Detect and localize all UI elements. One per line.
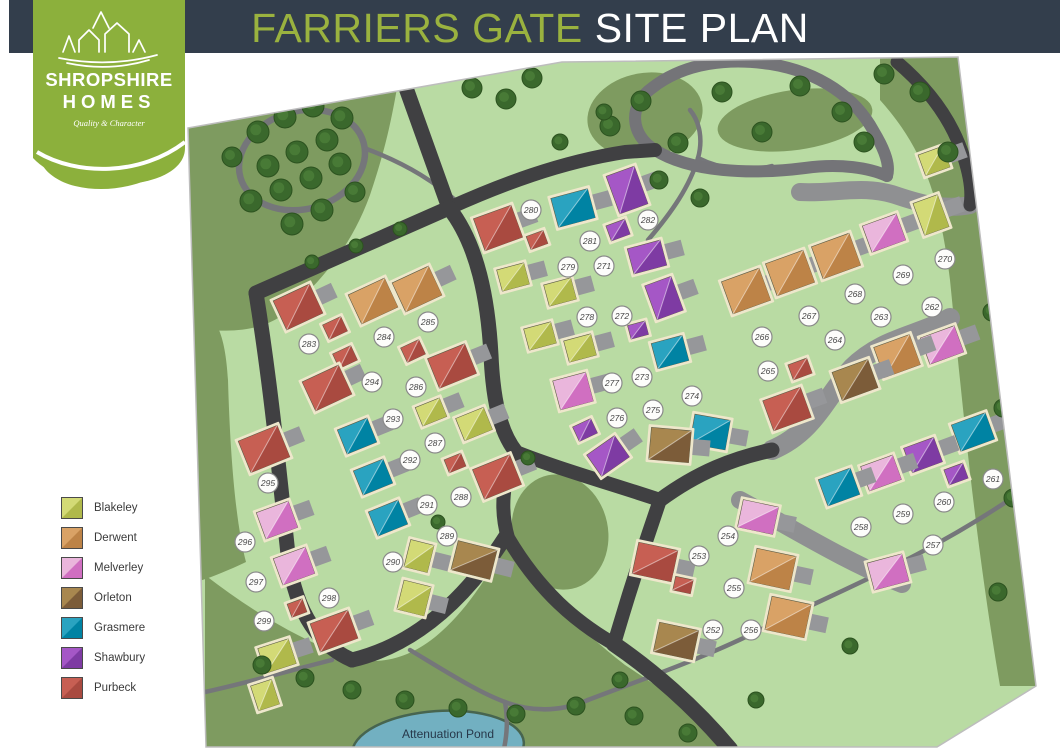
legend-item-melverley: Melverley	[61, 557, 145, 579]
tree-icon	[521, 451, 535, 465]
plot-marker-258: 258	[851, 517, 871, 537]
plot-marker-281: 281	[580, 231, 600, 251]
plot-marker-280: 280	[521, 200, 541, 220]
tree-icon	[650, 171, 668, 189]
plot-marker-253: 253	[689, 546, 709, 566]
tree-icon	[247, 121, 269, 143]
plot-marker-265: 265	[758, 361, 778, 381]
svg-text:293: 293	[385, 414, 400, 424]
plot-marker-295: 295	[258, 473, 278, 493]
plot-marker-273: 273	[632, 367, 652, 387]
tree-icon	[938, 142, 958, 162]
tree-icon	[316, 129, 338, 151]
legend-swatch-icon	[61, 617, 83, 639]
svg-text:272: 272	[614, 311, 629, 321]
svg-text:254: 254	[720, 531, 735, 541]
plot-marker-296: 296	[235, 532, 255, 552]
tree-icon	[296, 669, 314, 687]
svg-text:283: 283	[301, 339, 316, 349]
plot-marker-266: 266	[752, 327, 772, 347]
legend-swatch-icon	[61, 677, 83, 699]
plot-marker-274: 274	[682, 386, 702, 406]
plot-marker-284: 284	[374, 327, 394, 347]
plot-marker-263: 263	[871, 307, 891, 327]
legend-item-grasmere: Grasmere	[61, 617, 145, 639]
logo-line1: SHROPSHIRE	[45, 69, 172, 90]
plot-marker-271: 271	[594, 256, 614, 276]
tree-icon	[842, 638, 858, 654]
plot-marker-254: 254	[718, 526, 738, 546]
legend-item-shawbury: Shawbury	[61, 647, 145, 669]
tree-icon	[612, 672, 628, 688]
tree-icon	[311, 199, 333, 221]
tree-icon	[270, 179, 292, 201]
tree-icon	[522, 68, 542, 88]
legend-swatch-icon	[61, 497, 83, 519]
plot-marker-286: 286	[406, 377, 426, 397]
plot-marker-297: 297	[246, 572, 266, 592]
plot-marker-292: 292	[400, 450, 420, 470]
house-type-legend: BlakeleyDerwentMelverleyOrletonGrasmereS…	[61, 497, 145, 699]
svg-text:285: 285	[420, 317, 435, 327]
svg-text:289: 289	[439, 531, 454, 541]
plot-marker-252: 252	[703, 620, 723, 640]
logo-line2: HOMES	[63, 91, 156, 112]
plot-marker-289: 289	[437, 526, 457, 546]
svg-text:274: 274	[684, 391, 699, 401]
svg-text:288: 288	[453, 492, 468, 502]
svg-text:255: 255	[726, 583, 741, 593]
plot-marker-285: 285	[418, 312, 438, 332]
tree-icon	[462, 78, 482, 98]
tree-icon	[790, 76, 810, 96]
svg-text:258: 258	[853, 522, 868, 532]
svg-text:269: 269	[895, 270, 910, 280]
plot-marker-259: 259	[893, 504, 913, 524]
svg-text:264: 264	[827, 335, 842, 345]
tree-icon	[349, 239, 363, 253]
plot-marker-288: 288	[451, 487, 471, 507]
title-development-name: FARRIERS GATE	[251, 5, 583, 51]
tree-icon	[679, 724, 697, 742]
plot-marker-276: 276	[607, 408, 627, 428]
tree-icon	[874, 64, 894, 84]
svg-text:298: 298	[321, 593, 336, 603]
svg-text:297: 297	[248, 577, 263, 587]
tree-icon	[552, 134, 568, 150]
title-suffix: SITE PLAN	[595, 5, 809, 51]
legend-label: Grasmere	[94, 622, 145, 634]
svg-text:284: 284	[376, 332, 391, 342]
plot-marker-269: 269	[893, 265, 913, 285]
plot-marker-293: 293	[383, 409, 403, 429]
tree-icon	[989, 583, 1007, 601]
legend-label: Melverley	[94, 562, 143, 574]
legend-item-blakeley: Blakeley	[61, 497, 145, 519]
tree-icon	[396, 691, 414, 709]
legend-label: Orleton	[94, 592, 132, 604]
tree-icon	[567, 697, 585, 715]
svg-text:273: 273	[634, 372, 649, 382]
legend-label: Derwent	[94, 532, 137, 544]
plot-marker-256: 256	[741, 620, 761, 640]
svg-text:286: 286	[408, 382, 423, 392]
svg-text:280: 280	[523, 205, 538, 215]
tree-icon	[668, 133, 688, 153]
plot-marker-290: 290	[383, 552, 403, 572]
svg-text:252: 252	[705, 625, 720, 635]
plot-marker-282: 282	[638, 210, 658, 230]
tree-icon	[854, 132, 874, 152]
tree-icon	[329, 153, 351, 175]
svg-text:277: 277	[604, 378, 619, 388]
plot-marker-298: 298	[319, 588, 339, 608]
svg-text:268: 268	[847, 289, 862, 299]
plot-marker-291: 291	[417, 495, 437, 515]
svg-text:282: 282	[640, 215, 655, 225]
svg-text:262: 262	[924, 302, 939, 312]
legend-label: Purbeck	[94, 682, 136, 694]
tree-icon	[625, 707, 643, 725]
tree-icon	[910, 82, 930, 102]
tree-icon	[631, 91, 651, 111]
svg-text:276: 276	[609, 413, 624, 423]
svg-text:253: 253	[691, 551, 706, 561]
svg-text:275: 275	[645, 405, 660, 415]
shropshire-homes-logo: SHROPSHIRE HOMES Quality & Character	[33, 0, 185, 198]
legend-swatch-icon	[61, 587, 83, 609]
plot-marker-267: 267	[799, 306, 819, 326]
svg-text:287: 287	[427, 438, 442, 448]
tree-icon	[281, 213, 303, 235]
svg-text:265: 265	[760, 366, 775, 376]
tree-icon	[507, 705, 525, 723]
tree-icon	[343, 681, 361, 699]
plot-marker-294: 294	[362, 372, 382, 392]
plot-marker-257: 257	[923, 535, 943, 555]
plot-marker-278: 278	[577, 307, 597, 327]
site-plan-page: 2522532542552562572582592602612622632642…	[0, 0, 1060, 749]
plot-marker-262: 262	[922, 297, 942, 317]
pond-label: Attenuation Pond	[402, 727, 494, 741]
tree-icon	[748, 692, 764, 708]
svg-text:290: 290	[385, 557, 400, 567]
tree-icon	[257, 155, 279, 177]
tree-icon	[691, 189, 709, 207]
plot-marker-270: 270	[935, 249, 955, 269]
svg-text:296: 296	[237, 537, 252, 547]
tree-icon	[832, 102, 852, 122]
plot-marker-275: 275	[643, 400, 663, 420]
legend-label: Blakeley	[94, 502, 137, 514]
tree-icon	[449, 699, 467, 717]
tree-icon	[305, 255, 319, 269]
svg-text:279: 279	[560, 262, 575, 272]
legend-swatch-icon	[61, 647, 83, 669]
svg-text:256: 256	[743, 625, 758, 635]
tree-icon	[253, 656, 271, 674]
svg-text:299: 299	[256, 616, 271, 626]
svg-text:294: 294	[364, 377, 379, 387]
tree-icon	[300, 167, 322, 189]
tree-icon	[331, 107, 353, 129]
plot-marker-283: 283	[299, 334, 319, 354]
svg-text:261: 261	[985, 474, 1000, 484]
svg-text:257: 257	[925, 540, 940, 550]
logo-tagline: Quality & Character	[73, 118, 145, 128]
svg-text:295: 295	[260, 478, 275, 488]
plot-marker-260: 260	[934, 492, 954, 512]
tree-icon	[240, 190, 262, 212]
plot-marker-268: 268	[845, 284, 865, 304]
tree-icon	[712, 82, 732, 102]
legend-swatch-icon	[61, 527, 83, 549]
svg-text:260: 260	[936, 497, 951, 507]
svg-text:266: 266	[754, 332, 769, 342]
svg-text:281: 281	[582, 236, 597, 246]
legend-swatch-icon	[61, 557, 83, 579]
plot-marker-287: 287	[425, 433, 445, 453]
plot-marker-277: 277	[602, 373, 622, 393]
plot-marker-299: 299	[254, 611, 274, 631]
tree-icon	[596, 104, 612, 120]
svg-text:259: 259	[895, 509, 910, 519]
svg-text:270: 270	[937, 254, 952, 264]
plot-marker-261: 261	[983, 469, 1003, 489]
svg-text:271: 271	[596, 261, 611, 271]
legend-label: Shawbury	[94, 652, 145, 664]
plot-marker-272: 272	[612, 306, 632, 326]
plot-marker-255: 255	[724, 578, 744, 598]
tree-icon	[983, 303, 1001, 321]
legend-item-purbeck: Purbeck	[61, 677, 145, 699]
tree-icon	[222, 147, 242, 167]
plot-marker-264: 264	[825, 330, 845, 350]
svg-text:278: 278	[579, 312, 594, 322]
tree-icon	[286, 141, 308, 163]
svg-text:291: 291	[419, 500, 434, 510]
tree-icon	[393, 222, 407, 236]
svg-text:292: 292	[402, 455, 417, 465]
tree-icon	[496, 89, 516, 109]
tree-icon	[752, 122, 772, 142]
plot-marker-279: 279	[558, 257, 578, 277]
tree-icon	[345, 182, 365, 202]
svg-text:267: 267	[801, 311, 816, 321]
legend-item-derwent: Derwent	[61, 527, 145, 549]
legend-item-orleton: Orleton	[61, 587, 145, 609]
svg-text:263: 263	[873, 312, 888, 322]
